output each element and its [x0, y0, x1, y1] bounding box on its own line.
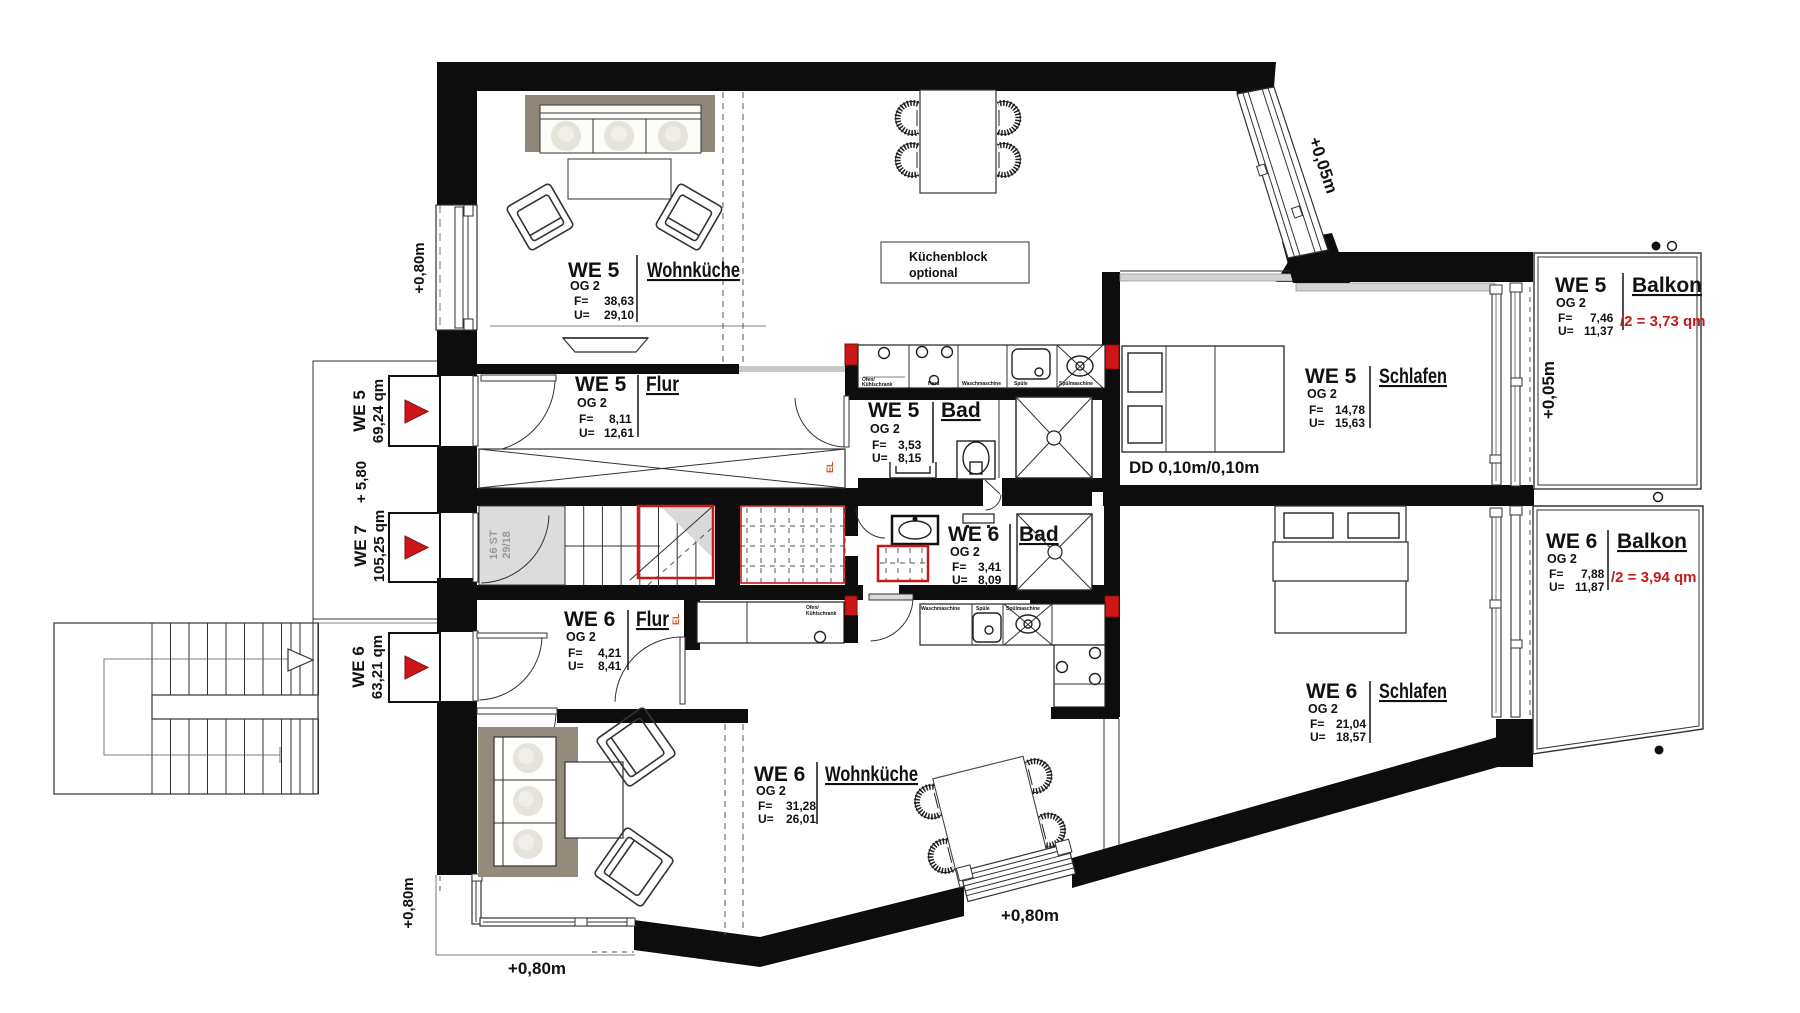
svg-text:69,24 qm: 69,24 qm [370, 379, 387, 443]
svg-text:105,25 qm: 105,25 qm [371, 510, 388, 583]
svg-text:EL: EL [825, 461, 835, 473]
svg-text:Waschmaschine: Waschmaschine [921, 606, 960, 612]
svg-text:/2 = 3,94 qm: /2 = 3,94 qm [1611, 569, 1696, 586]
svg-text:U=: U= [1310, 730, 1326, 744]
svg-text:Spüle: Spüle [1014, 381, 1028, 387]
svg-text:29,10: 29,10 [604, 308, 634, 322]
svg-text:WE 6: WE 6 [1546, 530, 1597, 553]
svg-text:11,37: 11,37 [1584, 324, 1614, 338]
svg-text:WE 6: WE 6 [349, 646, 368, 688]
svg-text:WE 5: WE 5 [868, 399, 920, 422]
svg-text:F=: F= [574, 294, 588, 308]
svg-text:+0,80m: +0,80m [1001, 906, 1059, 925]
svg-text:Spüle: Spüle [976, 606, 990, 612]
svg-text:+0,05m: +0,05m [1539, 361, 1558, 419]
svg-text:+0,80m: +0,80m [411, 242, 428, 293]
svg-text:DD 0,10m/0,10m: DD 0,10m/0,10m [1129, 458, 1259, 477]
svg-text:7,46: 7,46 [1590, 311, 1614, 325]
svg-text:Waschmaschine: Waschmaschine [962, 381, 1001, 387]
svg-text:U=: U= [568, 659, 584, 673]
svg-text:F=: F= [568, 646, 582, 660]
svg-text:63,21 qm: 63,21 qm [369, 635, 386, 699]
svg-text:31,28: 31,28 [786, 799, 816, 813]
svg-text:optional: optional [909, 266, 958, 280]
svg-text:8,15: 8,15 [898, 451, 922, 465]
svg-text:OG 2: OG 2 [566, 630, 596, 644]
svg-text:Flur: Flur [636, 608, 669, 631]
svg-text:Wohnküche: Wohnküche [825, 763, 918, 786]
svg-text:+ 5,80: + 5,80 [353, 461, 370, 503]
svg-text:21,04: 21,04 [1336, 717, 1366, 731]
svg-text:WE 7: WE 7 [351, 525, 370, 567]
svg-text:EL: EL [671, 613, 681, 625]
svg-text:8,09: 8,09 [978, 573, 1002, 587]
svg-text:OG 2: OG 2 [1307, 387, 1337, 401]
svg-text:Balkon: Balkon [1632, 274, 1702, 297]
svg-text:4,21: 4,21 [598, 646, 622, 660]
svg-text:8,11: 8,11 [609, 412, 632, 426]
svg-text:OG 2: OG 2 [870, 422, 900, 436]
svg-text:26,01: 26,01 [786, 812, 816, 826]
svg-text:38,63: 38,63 [604, 294, 634, 308]
svg-text:Spülmaschine: Spülmaschine [1006, 606, 1040, 612]
svg-text:U=: U= [574, 308, 590, 322]
svg-text:WE 6: WE 6 [754, 763, 805, 786]
svg-text:Kühlschrank: Kühlschrank [862, 382, 893, 388]
svg-text:3,53: 3,53 [898, 438, 922, 452]
svg-text:WE 5: WE 5 [350, 390, 369, 432]
svg-text:15,63: 15,63 [1335, 416, 1365, 430]
svg-text:29/18: 29/18 [501, 531, 513, 559]
svg-text:OG 2: OG 2 [1556, 296, 1586, 310]
svg-text:WE 5: WE 5 [1305, 365, 1357, 388]
svg-text:WE 6: WE 6 [564, 608, 615, 631]
svg-text:F=: F= [1558, 311, 1572, 325]
svg-text:12,61: 12,61 [604, 426, 634, 440]
svg-text:Spülmaschine: Spülmaschine [1059, 381, 1093, 387]
svg-text:U=: U= [1309, 416, 1325, 430]
svg-text:F=: F= [872, 438, 886, 452]
svg-text:16 ST: 16 ST [488, 530, 500, 560]
svg-text:3,41: 3,41 [978, 560, 1002, 574]
svg-text:F=: F= [579, 412, 593, 426]
svg-text:OG 2: OG 2 [1308, 702, 1338, 716]
svg-text:+0,80m: +0,80m [400, 877, 417, 928]
svg-text:/2 = 3,73 qm: /2 = 3,73 qm [1620, 313, 1705, 330]
svg-text:Bad: Bad [1019, 523, 1059, 546]
svg-text:F=: F= [1310, 717, 1324, 731]
svg-text:11,87: 11,87 [1575, 580, 1605, 594]
svg-text:WE 6: WE 6 [948, 523, 999, 546]
svg-text:Küchenblock: Küchenblock [909, 250, 988, 264]
svg-text:WE 5: WE 5 [1555, 274, 1607, 297]
svg-text:14,78: 14,78 [1335, 403, 1365, 417]
svg-text:U=: U= [1558, 324, 1574, 338]
svg-text:Schlafen: Schlafen [1379, 680, 1447, 703]
svg-text:OG 2: OG 2 [1547, 552, 1577, 566]
svg-text:Flur: Flur [646, 373, 679, 396]
svg-text:OG 2: OG 2 [577, 396, 607, 410]
svg-text:8,41: 8,41 [598, 659, 622, 673]
svg-text:F=: F= [758, 799, 772, 813]
svg-text:Wohnküche: Wohnküche [647, 259, 740, 282]
svg-text:WE 6: WE 6 [1306, 680, 1357, 703]
svg-text:OG 2: OG 2 [950, 545, 980, 559]
svg-text:F=: F= [1309, 403, 1323, 417]
svg-text:U=: U= [758, 812, 774, 826]
svg-text:U=: U= [872, 451, 888, 465]
svg-text:F=: F= [952, 560, 966, 574]
svg-text:18,57: 18,57 [1336, 730, 1366, 744]
svg-text:OG 2: OG 2 [570, 279, 600, 293]
svg-text:Kühlschrank: Kühlschrank [806, 611, 837, 617]
svg-text:Bad: Bad [941, 399, 981, 422]
svg-text:U=: U= [1549, 580, 1565, 594]
svg-text:Herd: Herd [928, 381, 939, 387]
svg-text:Balkon: Balkon [1617, 530, 1687, 553]
svg-text:WE 5: WE 5 [575, 373, 627, 396]
svg-text:+0,80m: +0,80m [508, 959, 566, 978]
svg-text:Schlafen: Schlafen [1379, 365, 1447, 388]
svg-text:U=: U= [579, 426, 595, 440]
svg-text:F=: F= [1549, 567, 1563, 581]
svg-text:7,88: 7,88 [1581, 567, 1605, 581]
svg-text:OG 2: OG 2 [756, 784, 786, 798]
svg-text:U=: U= [952, 573, 968, 587]
